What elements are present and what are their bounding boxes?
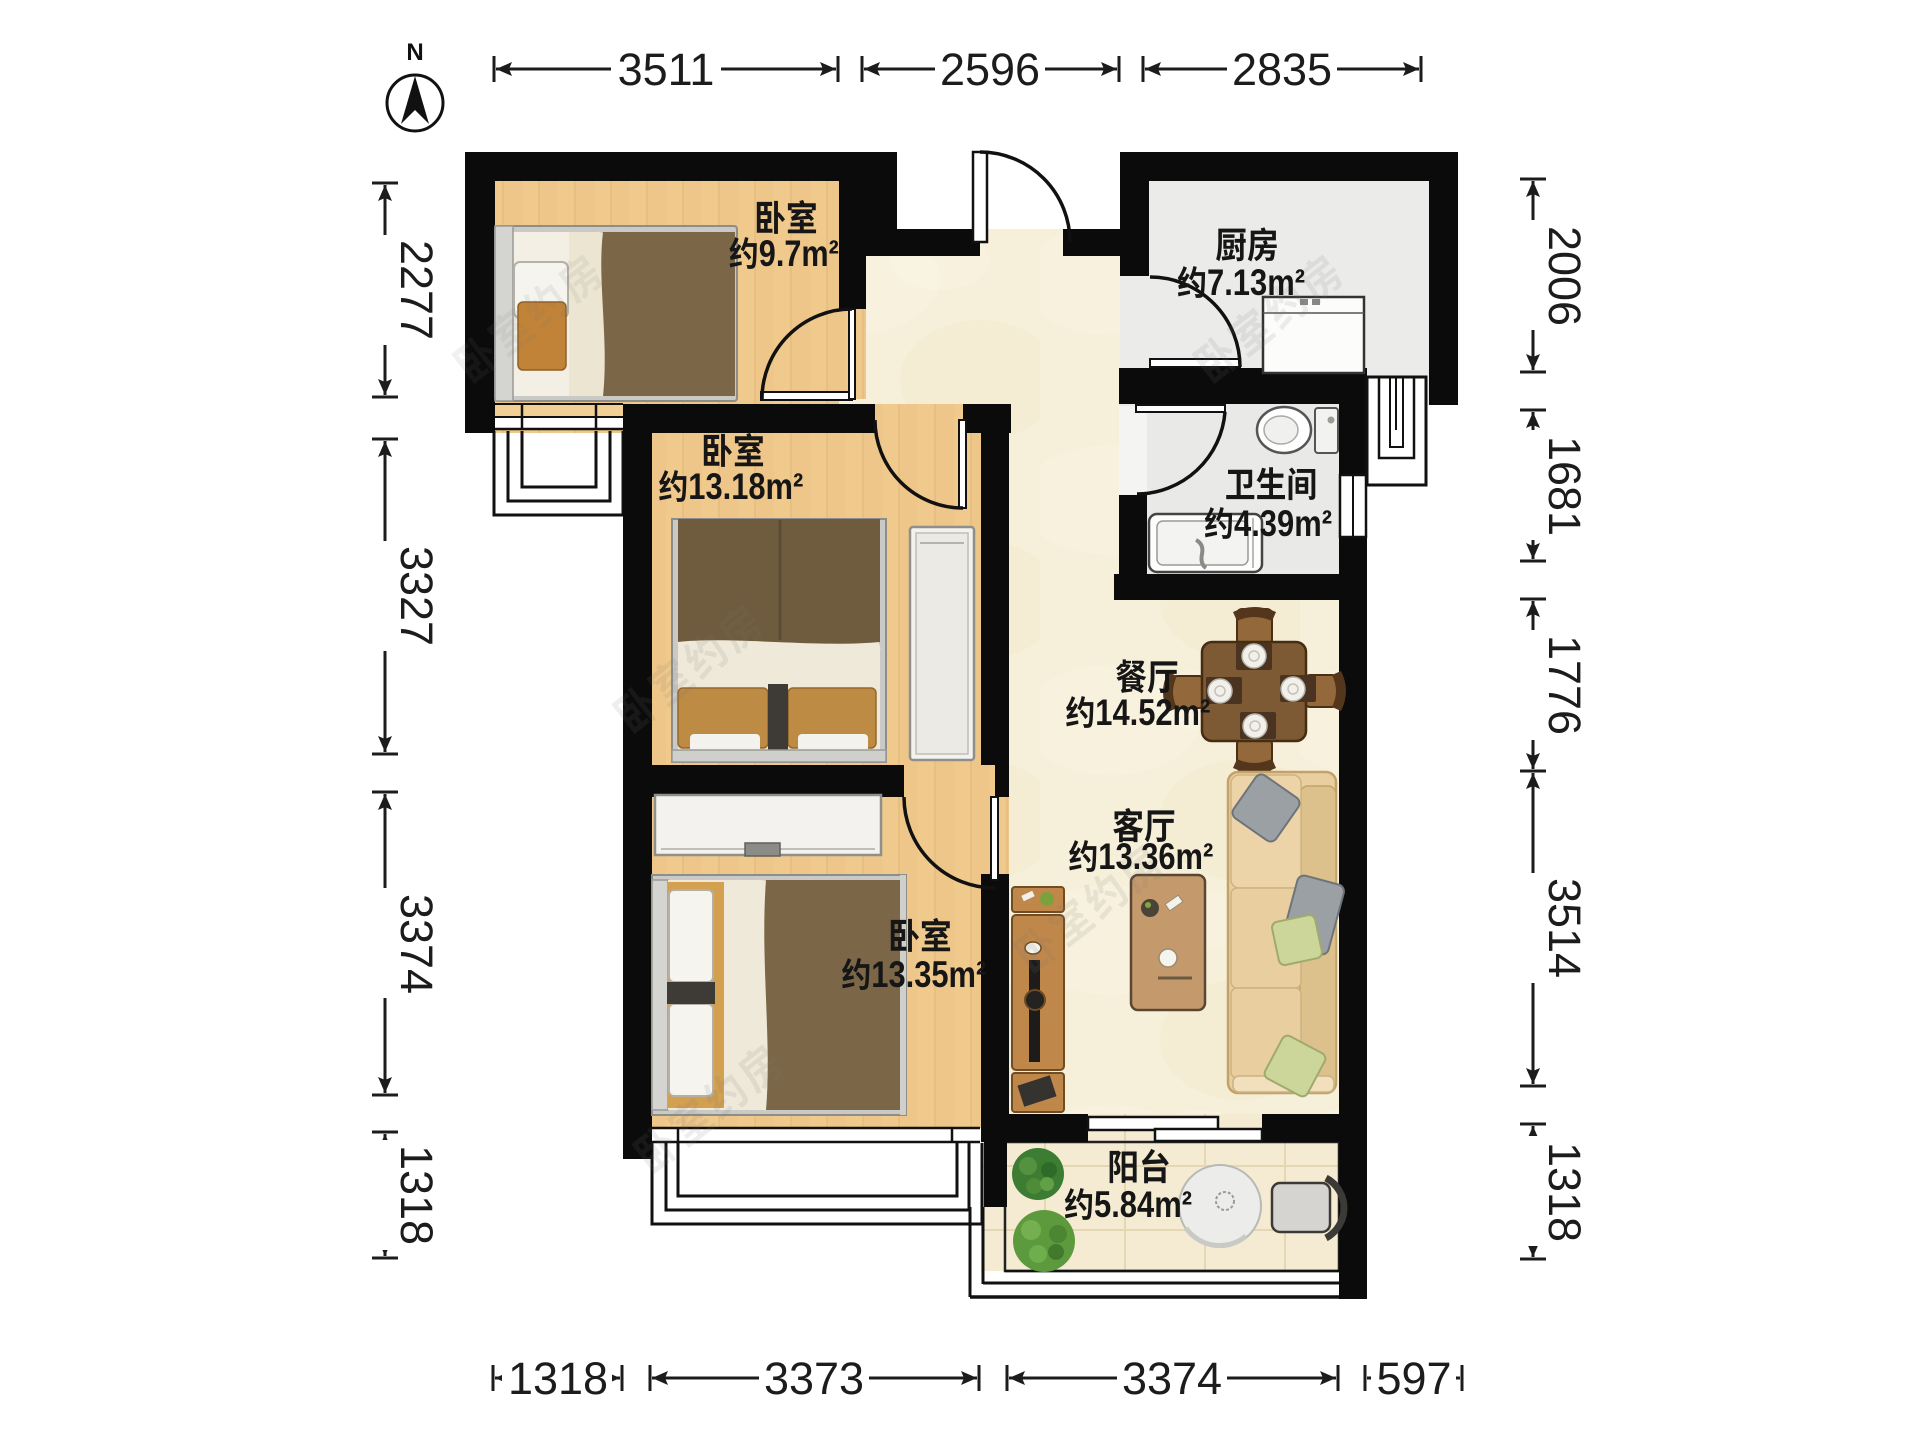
svg-text:2835: 2835 [1232, 44, 1332, 95]
svg-text:N: N [406, 39, 423, 66]
svg-text:597: 597 [1376, 1353, 1451, 1404]
svg-text:13.36m²: 13.36m² [1098, 836, 1213, 877]
svg-text:2596: 2596 [940, 44, 1040, 95]
svg-text:3374: 3374 [391, 894, 442, 994]
svg-text:13.35m²: 13.35m² [871, 954, 986, 995]
svg-text:5.84m²: 5.84m² [1094, 1184, 1192, 1225]
svg-text:9.7m²: 9.7m² [759, 233, 839, 274]
svg-text:3511: 3511 [618, 44, 715, 95]
svg-text:1318: 1318 [508, 1353, 608, 1404]
svg-text:13.18m²: 13.18m² [688, 466, 803, 507]
svg-text:1318: 1318 [1539, 1142, 1590, 1242]
svg-text:2006: 2006 [1539, 226, 1590, 326]
svg-text:2277: 2277 [391, 240, 442, 340]
svg-text:7.13m²: 7.13m² [1207, 262, 1305, 303]
svg-text:3374: 3374 [1122, 1353, 1222, 1404]
svg-text:1776: 1776 [1539, 635, 1590, 735]
svg-text:4.39m²: 4.39m² [1234, 503, 1332, 544]
svg-text:1318: 1318 [391, 1145, 442, 1245]
svg-text:3373: 3373 [764, 1353, 864, 1404]
svg-text:1681: 1681 [1539, 436, 1590, 536]
svg-text:14.52m²: 14.52m² [1095, 692, 1210, 733]
svg-text:3327: 3327 [391, 546, 442, 646]
svg-text:3514: 3514 [1539, 878, 1590, 978]
